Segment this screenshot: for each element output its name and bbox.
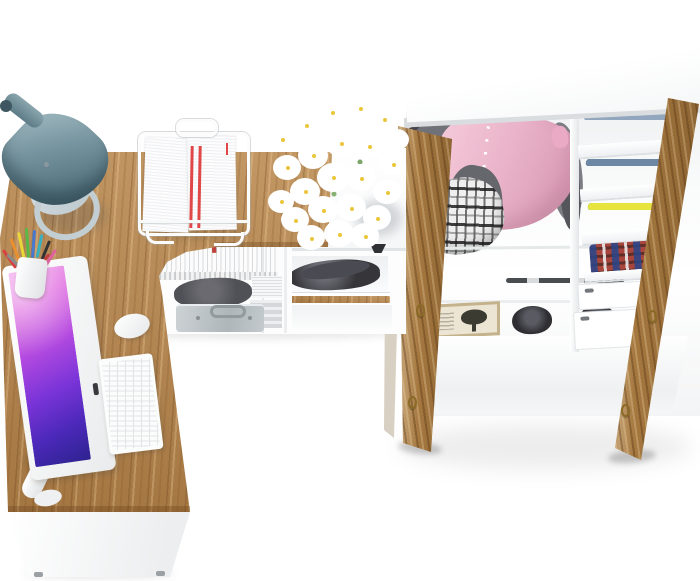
briefcase-handle [210,305,246,318]
product-render [0,0,700,581]
desk-front-panel [6,510,192,580]
oak-shelf-board [290,296,390,303]
keyboard [98,353,163,455]
desk-foot [156,571,165,576]
tray-wire-bar [140,220,248,223]
tray-handle [176,119,218,137]
keyboard-keys [102,357,160,450]
tray-leg [146,230,174,244]
briefcase-latch [248,316,252,320]
pencil [25,228,30,258]
pencil-cup-group [2,222,64,302]
desk-front-edge [8,506,190,512]
pencil-cup [14,257,48,300]
briefcase-latch [196,316,200,320]
lamp-base-screw [44,162,49,167]
desk-foot [34,572,43,577]
hinge-icon [621,404,630,417]
folded-garment [586,159,670,166]
folded-garment [588,203,657,210]
shelf-divider [284,243,287,333]
paper-stack [252,276,282,298]
hinge-icon [648,310,657,323]
drawer-pull [580,316,589,320]
hinge-icon [416,304,425,317]
hinge-icon [408,396,417,409]
lamp-shade-tip [0,100,12,112]
tree-print-trunk [472,322,476,331]
daisy-bouquet [264,98,406,250]
tray-leg [214,232,244,246]
drawer-pull [585,288,594,292]
floor-shadow [400,424,692,470]
lower-shelf-opening [284,305,392,329]
